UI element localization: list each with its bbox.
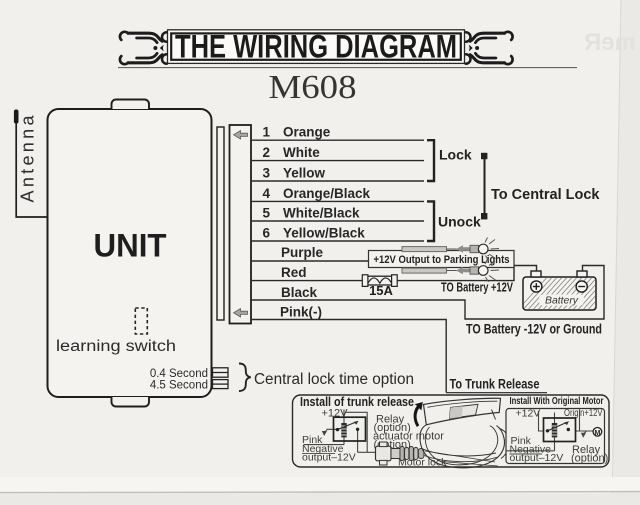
svg-text:M608: M608 (269, 69, 357, 106)
svg-text:Central lock time option: Central lock time option (254, 371, 414, 388)
svg-text:Pink(-): Pink(-) (280, 305, 322, 320)
svg-text:(option): (option) (571, 453, 608, 465)
svg-text:3: 3 (263, 165, 271, 180)
svg-text:output–12V: output–12V (302, 452, 356, 464)
svg-text:White: White (283, 145, 320, 160)
svg-text:Lock: Lock (439, 147, 472, 163)
svg-text:0.4 Second: 0.4 Second (150, 368, 208, 380)
svg-text:Install of trunk release: Install of trunk release (300, 395, 414, 409)
svg-text:6: 6 (263, 225, 271, 240)
svg-text:Unock: Unock (438, 214, 481, 230)
svg-text:UNIT: UNIT (94, 228, 167, 264)
svg-text:Orange/Black: Orange/Black (283, 186, 371, 201)
svg-text:Purple: Purple (281, 245, 324, 260)
svg-text:Battery: Battery (545, 296, 579, 307)
svg-text:M: M (594, 430, 600, 437)
svg-text:+12V: +12V (516, 408, 541, 420)
svg-text:+12V Output to Parking Lights: +12V Output to Parking Lights (374, 254, 510, 266)
svg-text:Red: Red (281, 265, 307, 280)
svg-text:Yellow/Black: Yellow/Black (283, 225, 365, 240)
svg-text:15A: 15A (369, 283, 393, 298)
svg-text:THE WIRING DIAGRAM: THE WIRING DIAGRAM (175, 29, 457, 65)
svg-text:To Trunk Release: To Trunk Release (450, 377, 540, 392)
svg-text:Black: Black (281, 285, 318, 300)
svg-text:TO Battery +12V: TO Battery +12V (441, 280, 513, 295)
svg-text:output–12V: output–12V (510, 452, 564, 464)
svg-text:TO Battery -12V or Ground: TO Battery -12V or Ground (466, 322, 602, 337)
svg-text:Orange: Orange (283, 125, 331, 140)
svg-text:4: 4 (263, 186, 271, 201)
svg-text:learning switch: learning switch (56, 338, 176, 355)
svg-text:White/Black: White/Black (283, 205, 360, 220)
svg-text:5: 5 (263, 205, 271, 220)
svg-text:To Central Lock: To Central Lock (491, 187, 600, 203)
svg-text:2: 2 (263, 145, 271, 160)
svg-text:Install With Original Motor: Install With Original Motor (510, 395, 604, 407)
svg-text:1: 1 (263, 125, 271, 140)
svg-text:meR: meR (584, 29, 636, 56)
svg-text:Motor lock: Motor lock (398, 457, 447, 469)
svg-text:4.5 Second: 4.5 Second (150, 380, 208, 392)
svg-text:Yellow: Yellow (283, 165, 326, 180)
